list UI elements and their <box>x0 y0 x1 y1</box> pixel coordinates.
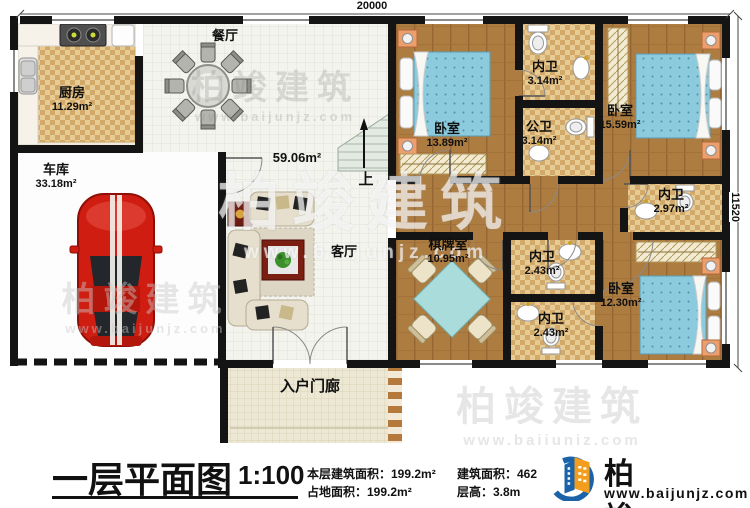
toilet-icon <box>587 117 594 137</box>
sink-icon <box>573 57 589 79</box>
room-label-bath-inner3: 内卫 2.43m² <box>525 250 560 277</box>
area-stats-left: 本层建筑面积：199.2m² 占地面积：199.2m² <box>307 465 436 501</box>
room-label-garage: 车库 33.18m² <box>36 163 77 190</box>
window <box>420 360 472 368</box>
porch-stripe-edge <box>388 368 402 443</box>
dimension-right: 11520 <box>729 192 741 222</box>
window <box>628 16 688 24</box>
area-stats-right: 建筑面积：462 层高：3.8m <box>457 465 537 501</box>
window <box>10 50 18 92</box>
car-mirror-left <box>70 246 79 253</box>
title-block: 一层平面图 1:100 本层建筑面积：199.2m² 占地面积：199.2m² … <box>0 445 750 508</box>
toilet-icon <box>528 25 548 32</box>
room-label-bedroom2: 卧室 15.59m² <box>600 104 641 131</box>
floor-height: 层高：3.8m <box>457 483 537 501</box>
room-label-bath-inner2: 内卫 2.97m² <box>654 188 689 215</box>
floor-plan-drawing <box>0 0 750 445</box>
window <box>243 16 309 24</box>
land-area: 占地面积：199.2m² <box>307 483 436 501</box>
floor-built-area: 本层建筑面积：199.2m² <box>307 465 436 483</box>
dining-table-set <box>165 43 251 129</box>
dimension-top: 20000 <box>354 0 391 12</box>
room-label-bath-inner4: 内卫 2.43m² <box>534 312 569 339</box>
plant-icon <box>275 252 291 268</box>
brand-logo-icon <box>546 451 598 501</box>
room-label-living: 客厅 <box>331 245 357 260</box>
window <box>722 58 730 130</box>
chess-room-furniture <box>407 254 497 344</box>
room-label-bath-public: 公卫 3.14m² <box>522 120 557 147</box>
room-label-chess: 棋牌室 10.95m² <box>428 238 469 265</box>
floor-plan-page: 柏竣建筑 www.baijunjz.com 柏竣建筑 www.baijunjz.… <box>0 0 750 508</box>
window <box>425 16 483 24</box>
brand-website: www.baijunjz.com <box>604 485 749 501</box>
living-furniture <box>228 192 314 330</box>
fridge-icon <box>112 25 134 46</box>
window <box>556 360 602 368</box>
garage-car <box>70 194 162 346</box>
room-label-kitchen: 厨房 11.29m² <box>52 86 92 113</box>
window <box>648 360 706 368</box>
room-label-dining: 餐厅 <box>212 29 238 44</box>
stairs-up-label: 上 <box>358 172 373 189</box>
window <box>722 272 730 344</box>
sofa-bottom <box>246 300 308 330</box>
plan-scale: 1:100 <box>238 460 305 491</box>
title-underline <box>52 496 298 499</box>
window <box>52 16 114 24</box>
sink-icon <box>529 145 549 161</box>
room-label-bedroom3: 卧室 12.30m² <box>601 282 642 309</box>
room-label-bath-inner1: 内卫 3.14m² <box>528 60 563 87</box>
total-built-area: 建筑面积：462 <box>457 465 537 483</box>
room-label-porch: 入户门廊 <box>280 379 340 396</box>
car-mirror-right <box>153 246 162 253</box>
room-label-hall-area: 59.06m² <box>273 151 321 166</box>
room-label-bedroom1: 卧室 13.89m² <box>427 122 468 149</box>
